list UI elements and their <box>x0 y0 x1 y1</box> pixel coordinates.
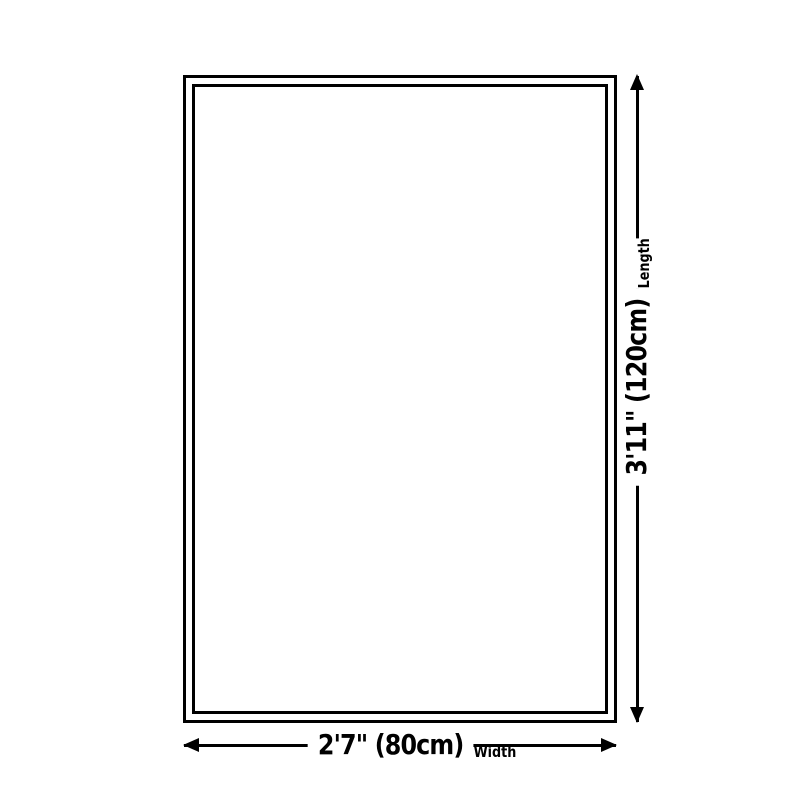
arrow-down-icon <box>630 707 644 723</box>
arrow-left-icon <box>183 738 199 752</box>
length-dimension-value: 3'11" (120cm) <box>620 288 654 485</box>
width-dimension-label: 2'7" (80cm) Width <box>308 728 517 762</box>
width-axis-label: Width <box>474 743 517 761</box>
arrow-up-icon <box>630 74 644 90</box>
product-outline-inner <box>192 84 608 714</box>
length-axis-label: Length <box>635 238 653 288</box>
length-dimension-label: 3'11" (120cm) Length <box>620 238 654 485</box>
width-dimension-value: 2'7" (80cm) <box>308 728 474 762</box>
product-outline-outer <box>183 75 617 723</box>
arrow-right-icon <box>601 738 617 752</box>
size-diagram: 3'11" (120cm) Length 2'7" (80cm) Width <box>0 0 800 800</box>
